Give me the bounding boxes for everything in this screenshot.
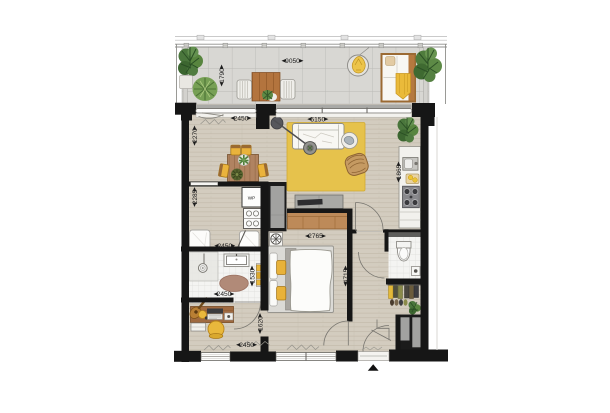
svg-text:2270: 2270 xyxy=(192,128,199,143)
svg-text:2450: 2450 xyxy=(217,291,232,298)
svg-text:2450: 2450 xyxy=(234,115,249,122)
svg-text:2450: 2450 xyxy=(217,243,232,250)
svg-text:5150: 5150 xyxy=(310,116,325,123)
svg-text:1865: 1865 xyxy=(396,164,403,179)
svg-text:2450: 2450 xyxy=(239,342,254,349)
svg-text:WP: WP xyxy=(248,195,255,200)
svg-text:9050: 9050 xyxy=(285,58,300,65)
svg-text:2285: 2285 xyxy=(192,189,199,204)
svg-text:2765: 2765 xyxy=(308,233,323,240)
svg-text:1790: 1790 xyxy=(219,68,226,83)
svg-text:4715: 4715 xyxy=(343,268,350,283)
svg-text:1530: 1530 xyxy=(249,268,256,283)
svg-text:1620: 1620 xyxy=(257,316,264,331)
